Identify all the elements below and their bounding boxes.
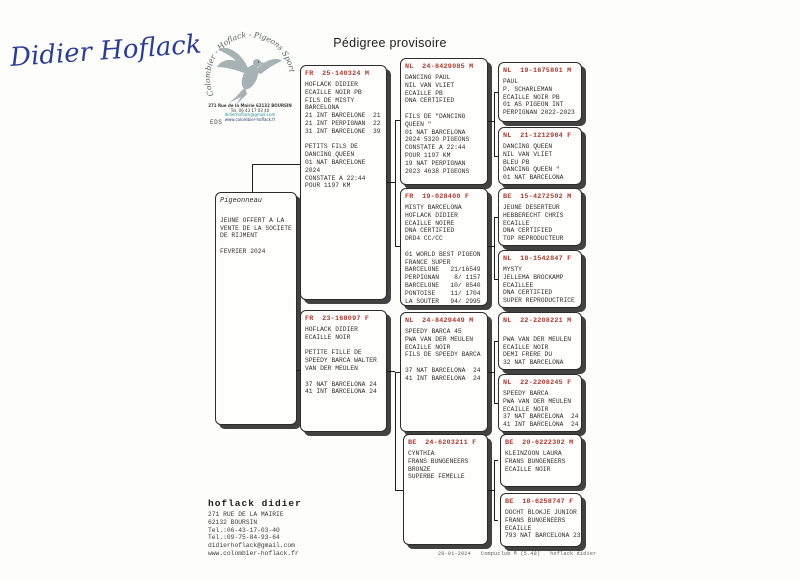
pedigree-text: DANCING QUEEN NIL VAN VLIET BLEU PB DANC…	[503, 143, 577, 182]
owner-website-line: www.colombier-hoflack.fr	[208, 550, 302, 558]
pedigree-box-great-grandparent-2: NL 21-1212984 F DANCING QUEEN NIL VAN VL…	[498, 127, 582, 185]
ring-number: FR 19-028400 F	[405, 193, 483, 201]
pedigree-box-great-grandparent-8: BE 18-6258747 F DOCHT BLOKJE JUNIOR FRAN…	[500, 493, 582, 547]
pedigree-text: DANCING PAUL NIL VAN VLIET ECAILLE PB DN…	[405, 74, 483, 175]
handwritten-signature: Didier Hoflack	[9, 29, 211, 73]
pedigree-box-mother: FR 23-168097 F HOFLACK DIDIER ECAILLE NO…	[300, 310, 387, 432]
pedigree-text: MISTY BARCELONA HOFLACK DIDIER ECAILLE N…	[405, 204, 483, 305]
pedigree-text: JEUNE DESERTEUR HEBBERECHT CHRIS ECAILLE…	[503, 204, 577, 243]
page-title: Pédigree provisoire	[300, 36, 480, 50]
owner-name: hoflack didier	[208, 498, 302, 509]
connector-line	[487, 490, 494, 491]
pedigree-text: CYNTHIA FRANS BUNGENEERS BRONZE SUPERBE …	[408, 450, 483, 481]
pedigree-text: PAUL P. SCHARLEMAN ECAILLE NOIR PB 01 AS…	[503, 78, 577, 117]
ring-number: BE 15-4272502 M	[503, 193, 577, 201]
owner-phone-line-2: Tel.:09-75-84-93-64	[208, 534, 302, 542]
ring-number: BE 18-6258747 F	[505, 498, 577, 506]
ring-number: FR 25-140324 M	[305, 70, 382, 78]
loft-logo: Colombier - Hoflack - Pigeons Sport 271 …	[198, 30, 302, 122]
pedigree-box-subject: Pigeonneau JEUNE OFFERT A LA VENTE DE LA…	[215, 192, 297, 425]
pedigree-text: KLEINZOON LAURA FRANS BUNGENEERS ECAILLE…	[505, 450, 577, 473]
pedigree-box-great-grandparent-1: NL 19-1675801 M PAUL P. SCHARLEMAN ECAIL…	[498, 62, 582, 122]
connector-line	[387, 182, 395, 183]
print-footer: 28-01-2024 Compuclub ® (5.48) hoflack di…	[438, 551, 596, 557]
ring-number: NL 21-1212984 F	[503, 132, 577, 140]
pedigree-box-great-grandparent-3: BE 15-4272502 M JEUNE DESERTEUR HEBBEREC…	[498, 188, 582, 246]
connector-line	[494, 217, 495, 279]
pigeon-logo-icon: Colombier - Hoflack - Pigeons Sport	[198, 30, 302, 104]
pedigree-box-grandsire-maternal: NL 24-8429449 M SPEEDY BARCA 45 PWA VAN …	[400, 312, 488, 432]
pedigree-box-great-grandparent-4: NL 18-1542847 F MYSTY JELLEMA BROCKAMP E…	[498, 250, 582, 308]
ring-number: NL 19-1675801 M	[503, 67, 577, 75]
connector-line	[252, 164, 300, 165]
eds-label: EDS	[210, 119, 222, 126]
pedigree-box-granddam-maternal: BE 24-6203211 F CYNTHIA FRANS BUNGENEERS…	[403, 434, 488, 545]
connector-line	[395, 372, 396, 490]
ring-number: BE 20-6222302 M	[505, 439, 577, 447]
ring-number: NL 24-8429449 M	[405, 317, 483, 325]
subject-title: Pigeonneau	[220, 197, 292, 205]
ring-number: NL 18-1542847 F	[503, 255, 577, 263]
pedigree-text: HOFLACK DIDIER ECAILLE NOIR PETITE FILLE…	[305, 326, 382, 396]
connector-line	[494, 92, 495, 156]
connector-line	[395, 120, 396, 246]
owner-contact-block: hoflack didier 271 RUE DE LA MAIRIE 6213…	[208, 498, 302, 558]
ring-number: NL 24-8429085 M	[405, 63, 483, 71]
connector-line	[494, 460, 495, 520]
pedigree-box-great-grandparent-7: BE 20-6222302 M KLEINZOON LAURA FRANS BU…	[500, 434, 582, 487]
pedigree-text: PWA VAN DER MEULEN ECAILLE NOIR DEMI FRE…	[503, 328, 577, 367]
pedigree-box-grandsire-paternal: NL 24-8429085 M DANCING PAUL NIL VAN VLI…	[400, 58, 488, 185]
ring-number: BE 24-6203211 F	[408, 439, 483, 447]
owner-phone-line-1: Tel.:06-43-17-03-40	[208, 527, 302, 535]
pedigree-document: Didier Hoflack Colombier - Hoflack - Pig…	[0, 0, 800, 581]
pedigree-box-father: FR 25-140324 M HOFLACK DIDIER ECAILLE NO…	[300, 65, 387, 300]
pedigree-text: SPEEDY BARCA PWA VAN DER MEULEN ECAILLE …	[503, 390, 577, 429]
pedigree-text: SPEEDY BARCA 45 PWA VAN DER MEULEN ECAIL…	[405, 328, 483, 383]
pedigree-text: DOCHT BLOKJE JUNIOR FRANS BUNGENEERS ECA…	[505, 509, 577, 540]
connector-line	[494, 520, 498, 521]
subject-text: JEUNE OFFERT A LA VENTE DE LA SOCIETE DE…	[220, 209, 292, 256]
pedigree-box-great-grandparent-5: NL 22-2208221 M PWA VAN DER MEULEN ECAIL…	[498, 312, 582, 370]
pedigree-box-granddam-paternal: FR 19-028400 F MISTY BARCELONA HOFLACK D…	[400, 188, 488, 306]
pedigree-box-great-grandparent-6: NL 22-2208245 F SPEEDY BARCA PWA VAN DER…	[498, 374, 582, 432]
connector-line	[494, 341, 495, 403]
owner-city-line: 62132 BOURSIN	[208, 519, 302, 527]
pedigree-text: HOFLACK DIDIER ECAILLE NOIR PB FILS DE M…	[305, 81, 382, 190]
ring-number: NL 22-2208221 M	[503, 317, 577, 325]
connector-line	[252, 164, 253, 192]
owner-address-line: 271 RUE DE LA MAIRIE	[208, 511, 302, 519]
pedigree-text: MYSTY JELLEMA BROCKAMP ECAILLEE DNA CERT…	[503, 266, 577, 305]
ring-number: FR 23-168097 F	[305, 315, 382, 323]
pigeon-silhouette	[217, 48, 282, 104]
owner-email-line: didierhoflack@gmail.com	[208, 542, 302, 550]
ring-number: NL 22-2208245 F	[503, 379, 577, 387]
connector-line	[395, 490, 403, 491]
connector-line	[494, 460, 498, 461]
connector-line	[387, 371, 395, 372]
